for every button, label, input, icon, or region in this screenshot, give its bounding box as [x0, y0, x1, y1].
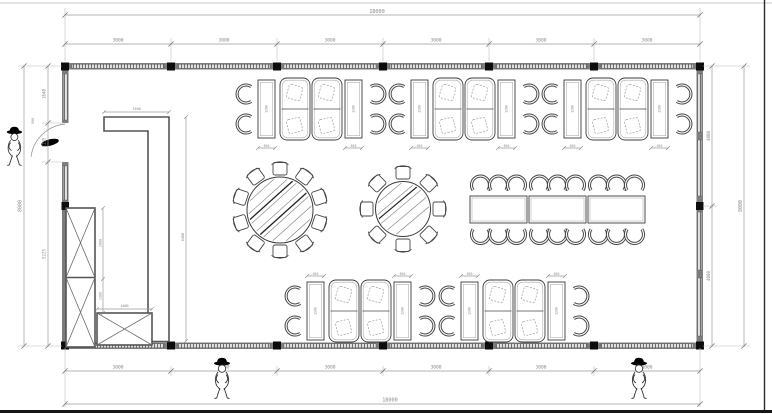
booth-cluster-top-2 — [390, 78, 538, 140]
dimension-right: 4000 4000 8000 — [703, 63, 750, 348]
service-counter — [104, 117, 169, 342]
dim-bottom-seg: 3000 — [324, 365, 335, 371]
dimension-top: 18000 3000 3000 3000 3000 3000 3000 — [62, 8, 702, 61]
round-table-8 — [360, 166, 446, 252]
door-opening — [61, 123, 70, 162]
dim-left-seg: 1640 — [42, 88, 47, 99]
sheet-bottom-edge — [0, 410, 772, 413]
booth-cluster-bottom-1 — [286, 280, 434, 342]
counter-length-label: 6400 — [181, 233, 185, 241]
counter-dimensions: 1500 6400 — [102, 107, 188, 343]
dim-left-seg: 5225 — [42, 248, 47, 259]
dim-top-total: 18000 — [369, 9, 385, 15]
banquet-table — [470, 176, 645, 243]
base-cabinet — [97, 313, 152, 345]
cabinet-lower-label: 1900 — [99, 292, 103, 300]
counter-width-label: 1500 — [132, 107, 140, 111]
person-figure — [214, 358, 230, 399]
dim-top-seg: 3000 — [641, 38, 652, 44]
cabinet-upper-label: 2000 — [99, 239, 103, 247]
person-figure — [7, 127, 22, 166]
round-table-10 — [232, 162, 329, 258]
dim-top-seg: 3000 — [535, 38, 546, 44]
dim-left-seg: 1135 — [42, 137, 47, 148]
floor-plan-sheet: 1200 1200 650 — [0, 0, 772, 414]
dim-door-width: 900 — [31, 118, 35, 124]
floor-plan-canvas: 1200 1200 650 — [0, 0, 772, 414]
dimension-bottom: 3000 3000 3000 3000 3000 3000 18000 — [62, 348, 702, 407]
dim-top-seg: 3000 — [112, 38, 123, 44]
dim-bottom-seg: 3000 — [112, 365, 123, 371]
dim-bottom-seg: 3000 — [535, 365, 546, 371]
dim-right-total: 8000 — [738, 200, 744, 212]
dim-top-seg: 3000 — [324, 38, 335, 44]
booth-cluster-top-1 — [237, 78, 385, 140]
cabinet-base-width-label: 1600 — [120, 304, 128, 308]
dim-right-seg: 4000 — [706, 130, 711, 141]
dim-right-seg: 4000 — [706, 270, 711, 281]
dim-bottom-total: 18000 — [382, 398, 398, 404]
dim-bottom-seg: 3000 — [641, 365, 652, 371]
cabinet-dimensions: 2000 1900 1600 — [95, 206, 154, 315]
tall-cabinet — [66, 208, 95, 347]
dimension-left: 8000 1640 1135 5225 900 — [18, 63, 66, 348]
dim-left-total: 8000 — [18, 200, 24, 212]
person-figure — [631, 358, 647, 399]
booth-cluster-top-3 — [543, 78, 691, 140]
dim-top-seg: 3000 — [430, 38, 441, 44]
dim-bottom-seg: 3000 — [430, 365, 441, 371]
dim-top-seg: 3000 — [218, 38, 229, 44]
booth-cluster-bottom-2 — [440, 280, 588, 342]
